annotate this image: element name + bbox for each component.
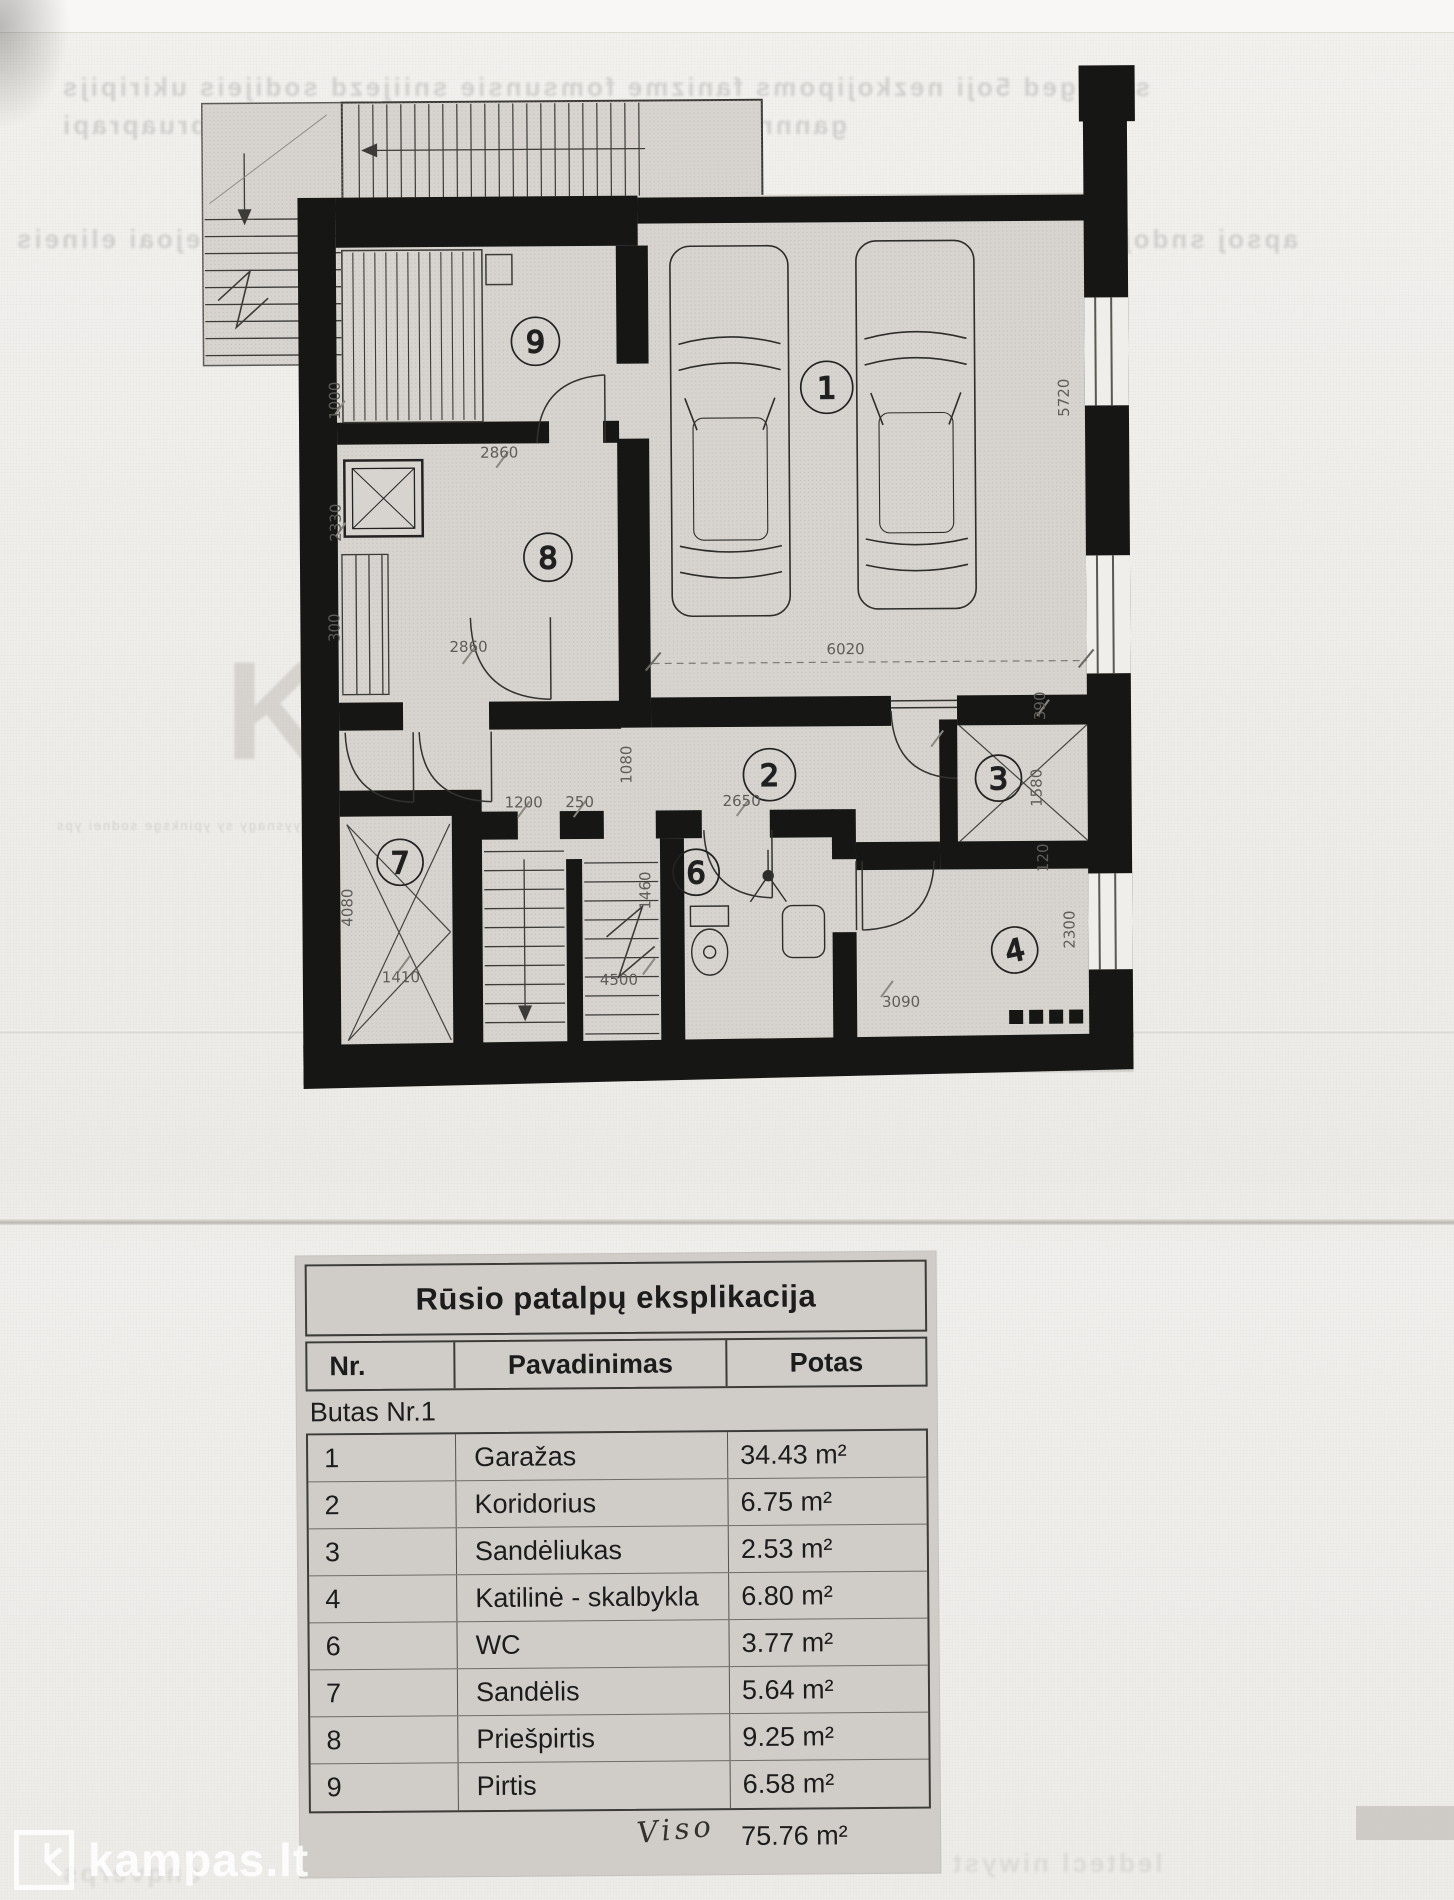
group-row: Butas Nr.1 <box>306 1387 928 1434</box>
table-row: 3 Sandėliukas 2.53 m² <box>309 1525 927 1577</box>
cell-nr: 8 <box>310 1716 458 1763</box>
cell-area: 5.64 m² <box>730 1666 928 1714</box>
table-row: 1 Garažas 34.43 m² <box>308 1431 926 1483</box>
dimension-label: 250 <box>565 793 594 811</box>
table-row: 4 Katilinė - skalbykla 6.80 m² <box>309 1572 927 1624</box>
cell-nr: 3 <box>309 1528 457 1575</box>
table-total-row: Viso 75.76 m² <box>309 1809 931 1866</box>
dimension-label: 2300 <box>1060 910 1078 948</box>
scan-artifact-block <box>1356 1806 1454 1840</box>
svg-text:9: 9 <box>526 325 545 360</box>
svg-text:3: 3 <box>989 762 1008 797</box>
table-row: 8 Priešpirtis 9.25 m² <box>310 1713 928 1765</box>
cell-area: 2.53 m² <box>729 1525 927 1573</box>
svg-text:8: 8 <box>538 541 557 576</box>
dimension-label: 1460 <box>636 871 654 909</box>
dimension-label: 2330 <box>327 504 345 542</box>
dimension-label: 4080 <box>338 889 356 927</box>
column-header-potas: Potas <box>727 1339 925 1387</box>
cell-nr: 6 <box>309 1622 457 1669</box>
svg-text:6: 6 <box>686 856 705 891</box>
column-header-pavadinimas: Pavadinimas <box>455 1340 727 1388</box>
dimension-label: 1080 <box>617 746 635 784</box>
dimension-label: 2860 <box>449 638 487 656</box>
cell-area: 6.75 m² <box>728 1478 926 1526</box>
cell-name: WC <box>457 1620 729 1668</box>
bleed-text-line: ledtecl niwyst <box>950 1848 1163 1879</box>
table-body: 1 Garažas 34.43 m² 2 Koridorius 6.75 m² … <box>306 1429 931 1814</box>
anteroom-stove <box>344 460 423 537</box>
cell-name: Priešpirtis <box>458 1714 730 1762</box>
svg-text:7: 7 <box>390 846 409 881</box>
cell-name: Katilinė - skalbykla <box>457 1573 729 1621</box>
dimension-label: 2860 <box>480 443 518 461</box>
cell-area: 9.25 m² <box>730 1713 928 1761</box>
cell-nr: 2 <box>308 1481 456 1528</box>
paper-seam <box>0 1219 1454 1226</box>
dimension-label: 300 <box>325 613 343 642</box>
dimension-label: 120 <box>1034 843 1052 872</box>
table-row: 2 Koridorius 6.75 m² <box>308 1478 926 1530</box>
dimension-label: 6020 <box>826 640 864 658</box>
site-watermark: kampas.lt <box>14 1830 309 1890</box>
table-row: 7 Sandėlis 5.64 m² <box>310 1666 928 1718</box>
cell-nr: 1 <box>308 1434 456 1481</box>
cell-nr: 7 <box>310 1669 458 1716</box>
dimension-label: 1410 <box>382 968 420 986</box>
cell-nr: 4 <box>309 1575 457 1622</box>
svg-text:2: 2 <box>760 759 779 794</box>
dimension-label: 2650 <box>722 792 760 810</box>
cell-name: Koridorius <box>456 1479 728 1527</box>
dimension-label: 390 <box>1031 691 1049 720</box>
table-row: 6 WC 3.77 m² <box>309 1619 927 1671</box>
dimension-label: 5720 <box>1055 378 1073 416</box>
dimension-label: 4500 <box>600 971 638 989</box>
dimension-label: 1200 <box>504 793 542 811</box>
floor-plan: 9 8 1 2 3 4 6 7 2860 2860 6020 5720 1000… <box>0 0 1454 1135</box>
table-row: 9 Pirtis 6.58 m² <box>311 1760 929 1812</box>
dimension-label: 1580 <box>1027 769 1045 807</box>
cell-name: Garažas <box>456 1432 728 1480</box>
cell-name: Sandėliukas <box>457 1526 729 1574</box>
cell-area: 34.43 m² <box>728 1431 926 1479</box>
table-title: Rūsio patalpų eksplikacija <box>305 1260 928 1337</box>
watermark-brand-text: kampas.lt <box>88 1833 309 1887</box>
dimension-label: 1000 <box>326 382 344 420</box>
cell-name: Sandėlis <box>458 1667 730 1715</box>
column-header-nr: Nr. <box>307 1342 455 1389</box>
cell-area: 3.77 m² <box>729 1619 927 1667</box>
table-header-row: Nr. Pavadinimas Potas <box>305 1337 927 1392</box>
explication-table: Rūsio patalpų eksplikacija Nr. Pavadinim… <box>296 1251 941 1877</box>
total-area-value: 75.76 m² <box>729 1809 931 1863</box>
cell-area: 6.80 m² <box>729 1572 927 1620</box>
kampas-logo-icon <box>14 1830 74 1890</box>
cell-nr: 9 <box>311 1763 459 1811</box>
cell-area: 6.58 m² <box>731 1760 929 1809</box>
dimension-label: 3090 <box>882 993 920 1011</box>
svg-text:1: 1 <box>817 371 836 406</box>
